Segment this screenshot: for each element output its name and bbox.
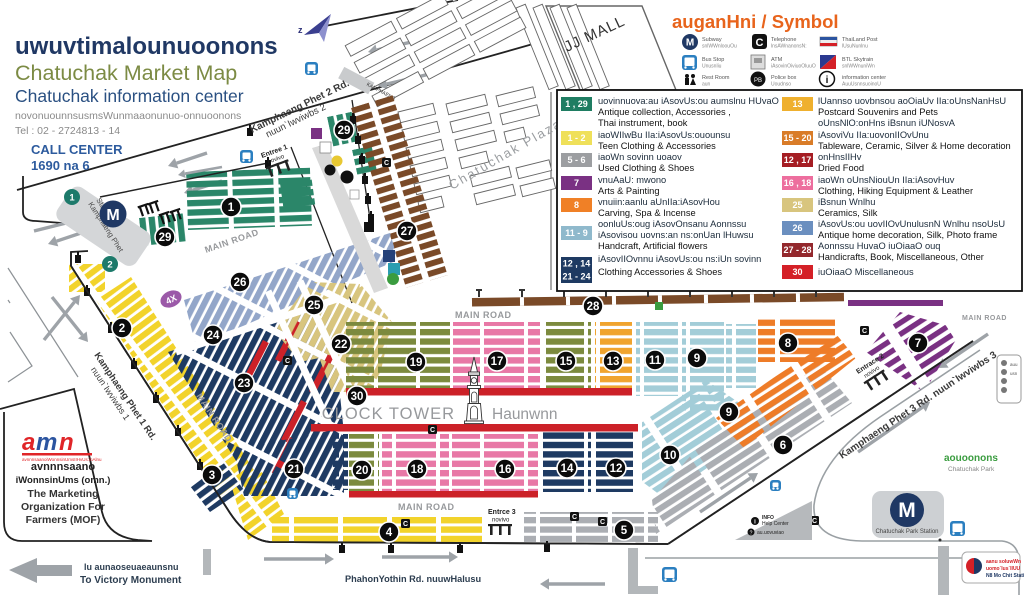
svg-text:PB: PB	[754, 78, 762, 84]
svg-text:15: 15	[560, 356, 573, 368]
svg-text:Handcraft, Artificial flowers: Handcraft, Artificial flowers	[598, 241, 708, 251]
svg-text:12 , 14: 12 , 14	[563, 259, 591, 269]
svg-text:C: C	[285, 358, 290, 365]
svg-text:iAsoviVu IIa:uovonIIOvUnu: iAsoviVu IIa:uovonIIOvUnu	[818, 130, 929, 140]
svg-text:iaoWIIwBu IIa:iAsovUs:ouounsu: iaoWIIwBu IIa:iAsovUs:ouounsu	[598, 130, 730, 140]
svg-text:ThaiLand Post: ThaiLand Post	[842, 37, 878, 43]
svg-text:onHnsIIHv: onHnsIIHv	[818, 152, 862, 162]
svg-text:n: n	[59, 429, 73, 456]
svg-text:C: C	[812, 518, 817, 525]
svg-text:oonluUs:oug iAsovOnsanu Aonnss: oonluUs:oug iAsovOnsanu Aonnssu	[598, 219, 746, 229]
svg-text:CLOCK TOWER: CLOCK TOWER	[322, 405, 455, 423]
svg-text:Chatuchak Market Map: Chatuchak Market Map	[15, 61, 237, 85]
svg-text:12: 12	[610, 463, 623, 475]
svg-text:25: 25	[792, 200, 802, 210]
svg-text:lu aunaoseuaeaunsnu: lu aunaoseuaeaunsnu	[84, 562, 179, 572]
svg-text:M: M	[898, 499, 916, 522]
svg-text:C: C	[756, 37, 764, 49]
svg-text:The Marketing: The Marketing	[27, 488, 98, 500]
svg-text:lnsAWnanonsN:: lnsAWnanonsN:	[771, 44, 807, 50]
svg-text:uovinnuova:au iAsovUs:ou aumsl: uovinnuova:au iAsovUs:ou aumslnu HUvaO	[598, 96, 779, 106]
svg-text:C: C	[600, 519, 605, 526]
svg-text:MAIN ROAD: MAIN ROAD	[455, 310, 512, 320]
svg-text:Arts & Painting: Arts & Painting	[598, 186, 660, 196]
svg-text:27 - 28: 27 - 28	[783, 245, 811, 255]
svg-text:iaoWn sovinn uoaov: iaoWn sovinn uoaov	[598, 152, 682, 162]
svg-text:C: C	[572, 514, 577, 521]
svg-text:2: 2	[107, 260, 112, 271]
svg-text:Ceramics, Silk: Ceramics, Silk	[818, 208, 878, 218]
svg-text:Subway: Subway	[702, 37, 722, 43]
svg-text:Entrce 3: Entrce 3	[488, 509, 516, 516]
svg-text:25: 25	[308, 300, 321, 312]
svg-text:lUsuNunlnu: lUsuNunlnu	[842, 44, 868, 50]
svg-text:Help Center: Help Center	[762, 521, 789, 527]
svg-text:16: 16	[499, 464, 512, 476]
svg-text:C: C	[403, 521, 408, 528]
svg-text:1 , 29: 1 , 29	[565, 99, 588, 109]
svg-text:Thai instrument, book: Thai instrument, book	[598, 118, 688, 128]
svg-text:1: 1	[69, 193, 75, 204]
svg-text:Antique collection, Accessorie: Antique collection, Accessories ,	[598, 107, 731, 117]
svg-text:14: 14	[561, 463, 574, 475]
svg-text:Teen Clothing & Accessories: Teen Clothing & Accessories	[598, 141, 716, 151]
svg-text:Unusnliu: Unusnliu	[702, 64, 722, 70]
svg-text:?: ?	[750, 531, 753, 537]
svg-text:Bus Stop: Bus Stop	[702, 57, 724, 63]
svg-text:7: 7	[915, 338, 921, 350]
svg-text:To Victory Monument: To Victory Monument	[80, 575, 182, 586]
svg-text:iWonnsinUms (omn.): iWonnsinUms (omn.)	[16, 475, 111, 486]
svg-text:iaoWn oUnsNiouUn IIa:iAsovHuv: iaoWn oUnsNiouUn IIa:iAsovHuv	[818, 175, 955, 185]
svg-text:z: z	[298, 25, 303, 35]
svg-text:18: 18	[411, 464, 424, 476]
svg-text:28: 28	[587, 301, 600, 313]
svg-text:10: 10	[664, 450, 677, 462]
svg-text:Chatuchak Park Station: Chatuchak Park Station	[875, 529, 938, 535]
svg-text:Chatuchak Park: Chatuchak Park	[948, 466, 995, 473]
svg-text:Used Clothing & Shoes: Used Clothing & Shoes	[598, 163, 694, 173]
svg-text:9: 9	[726, 407, 732, 419]
svg-text:Haunwnn: Haunwnn	[492, 406, 558, 423]
svg-text:MAIN ROAD: MAIN ROAD	[962, 315, 1007, 322]
svg-text:M: M	[686, 38, 694, 49]
svg-text:26: 26	[792, 223, 802, 233]
svg-text:7: 7	[574, 178, 579, 188]
svg-text:15 - 20: 15 - 20	[783, 133, 811, 143]
svg-text:6: 6	[780, 440, 786, 452]
svg-text:iAsovinOiviuoOluuO: iAsovinOiviuoOluuO	[771, 64, 816, 70]
svg-text:26: 26	[234, 277, 247, 289]
svg-text:1 - 2: 1 - 2	[567, 133, 585, 143]
svg-text:1690 na 6: 1690 na 6	[31, 158, 90, 173]
svg-text:Farmers (MOF): Farmers (MOF)	[26, 514, 101, 526]
svg-text:17: 17	[491, 356, 504, 368]
svg-text:Postcard Souvenirs and Pets: Postcard Souvenirs and Pets	[818, 107, 938, 117]
svg-text:ATM: ATM	[771, 57, 783, 63]
svg-text:Organization For: Organization For	[21, 501, 105, 513]
svg-text:au.uovuviao: au.uovuviao	[757, 530, 784, 536]
svg-text:auganHni / Symbol: auganHni / Symbol	[672, 11, 839, 32]
svg-text:Aonnssu HuvaO iuOiaaO ouq: Aonnssu HuvaO iuOiaaO ouq	[818, 241, 940, 251]
svg-text:Telephone: Telephone	[771, 37, 796, 43]
svg-text:3: 3	[209, 470, 215, 482]
svg-text:Handicrafts, Book, Miscellaneo: Handicrafts, Book, Miscellaneous, Other	[818, 252, 984, 262]
svg-text:snlWWnloouOu: snlWWnloouOu	[702, 44, 737, 50]
svg-text:iAsovisou uovns:an ns:onUan lH: iAsovisou uovns:an ns:onUan lHuwsu	[598, 230, 754, 240]
svg-text:8: 8	[574, 200, 579, 210]
svg-text:oUnsNlO:onHns iBsnun iUNosvA: oUnsNlO:onHns iBsnun iUNosvA	[818, 118, 956, 128]
svg-text:vnuAaU: mwono: vnuAaU: mwono	[598, 175, 666, 185]
svg-text:12 , 17: 12 , 17	[784, 155, 812, 165]
svg-text:i: i	[826, 75, 829, 86]
svg-text:Clothing, Hiking Equipment & L: Clothing, Hiking Equipment & Leather	[818, 186, 973, 196]
svg-text:30: 30	[351, 391, 364, 403]
svg-text:M: M	[106, 207, 119, 224]
svg-text:Tableware, Ceramic, Silver & H: Tableware, Ceramic, Silver & Home decora…	[818, 141, 1011, 151]
svg-text:16 , 18: 16 , 18	[784, 178, 812, 188]
svg-text:Police box: Police box	[771, 75, 797, 81]
svg-text:2: 2	[119, 323, 125, 335]
svg-text:information center: information center	[842, 75, 886, 81]
svg-text:iAsovUs:ou uovIIOvUnulusnN Wnl: iAsovUs:ou uovIIOvUnulusnN Wnlhu nsoUsU	[818, 219, 1005, 229]
svg-text:5 - 6: 5 - 6	[567, 155, 585, 165]
svg-text:27: 27	[401, 226, 414, 238]
svg-text:uomo`Ius`IIUU: uomo`Ius`IIUU	[986, 566, 1021, 572]
svg-text:9: 9	[694, 353, 700, 365]
svg-text:PhahonYothin Rd. nuuwHalusu: PhahonYothin Rd. nuuwHalusu	[345, 574, 481, 584]
svg-text:C: C	[384, 160, 389, 167]
svg-text:aouoonons: aouoonons	[944, 453, 998, 464]
svg-text:m: m	[36, 429, 57, 456]
svg-text:23: 23	[238, 378, 251, 390]
svg-text:4: 4	[386, 527, 393, 539]
svg-text:N8 Mo Chit Station: N8 Mo Chit Station	[986, 573, 1024, 579]
svg-text:13: 13	[607, 356, 620, 368]
svg-text:novonuounnsusmsWunmaaonunuo-on: novonuounnsusmsWunmaaonunuo-onnuoonons	[15, 110, 241, 122]
svg-text:aun: aun	[702, 82, 711, 88]
svg-text:Uoudnso: Uoudnso	[771, 82, 791, 88]
svg-text:5: 5	[621, 525, 628, 537]
svg-text:auu: auu	[1010, 362, 1018, 367]
svg-text:19: 19	[410, 357, 423, 369]
svg-text:vnuiin:aanlu aUnIIa:iAsovHou: vnuiin:aanlu aUnIIa:iAsovHou	[598, 197, 720, 207]
svg-text:a: a	[22, 429, 35, 456]
svg-text:Dried Food: Dried Food	[818, 163, 864, 173]
svg-text:CALL CENTER: CALL CENTER	[31, 142, 123, 157]
svg-text:Antique home decoration, Silk,: Antique home decoration, Silk, Photo fra…	[818, 230, 997, 240]
svg-text:29: 29	[338, 125, 351, 137]
svg-text:Clothing Accessories & Shoes: Clothing Accessories & Shoes	[598, 267, 722, 277]
svg-text:21: 21	[288, 464, 301, 476]
svg-text:Carving, Spa & Incense: Carving, Spa & Incense	[598, 208, 696, 218]
svg-text:29: 29	[159, 232, 172, 244]
svg-text:24: 24	[207, 330, 220, 342]
svg-text:BTL Skytrain: BTL Skytrain	[842, 57, 873, 63]
svg-text:lUannso uovbnsou aoOiaUv IIa:o: lUannso uovbnsou aoOiaUv IIa:oUnsNanHsU	[818, 96, 1006, 106]
svg-text:C: C	[430, 427, 435, 434]
svg-text:AuuUsnnsuoinoU: AuuUsnnsuoinoU	[842, 82, 881, 88]
svg-text:Chatuchak information center: Chatuchak information center	[15, 86, 244, 106]
svg-text:iBsnun Wnlhu: iBsnun Wnlhu	[818, 197, 875, 207]
svg-text:Rest Room: Rest Room	[702, 75, 730, 81]
svg-text:MAIN ROAD: MAIN ROAD	[398, 502, 455, 512]
svg-text:20: 20	[356, 465, 369, 477]
svg-text:8: 8	[785, 338, 792, 350]
svg-text:usn: usn	[1010, 371, 1018, 376]
svg-text:iuOiaaO Miscellaneous: iuOiaaO Miscellaneous	[818, 267, 914, 277]
svg-text:avnnnsaano: avnnnsaano	[31, 461, 95, 473]
svg-text:30: 30	[792, 267, 802, 277]
svg-text:C: C	[862, 328, 867, 335]
svg-text:22: 22	[335, 339, 348, 351]
svg-text:11: 11	[649, 355, 662, 367]
svg-text:novivo: novivo	[492, 518, 510, 524]
svg-text:Tel : 02 - 2724813 - 14: Tel : 02 - 2724813 - 14	[15, 125, 120, 137]
svg-text:13: 13	[792, 99, 802, 109]
svg-text:uwuvtimalounuoonons: uwuvtimalounuoonons	[15, 33, 278, 60]
svg-text:aanu soluwWn: aanu soluwWn	[986, 559, 1021, 565]
svg-text:21 - 24: 21 - 24	[562, 272, 590, 282]
svg-text:11 - 9: 11 - 9	[565, 228, 588, 238]
svg-text:1: 1	[228, 202, 235, 214]
svg-text:snlWWnuniWn: snlWWnuniWn	[842, 64, 875, 70]
svg-text:iAsovIIOvnnu iAsovUs:ou ns:iUn: iAsovIIOvnnu iAsovUs:ou ns:iUn sovinn	[598, 254, 761, 264]
